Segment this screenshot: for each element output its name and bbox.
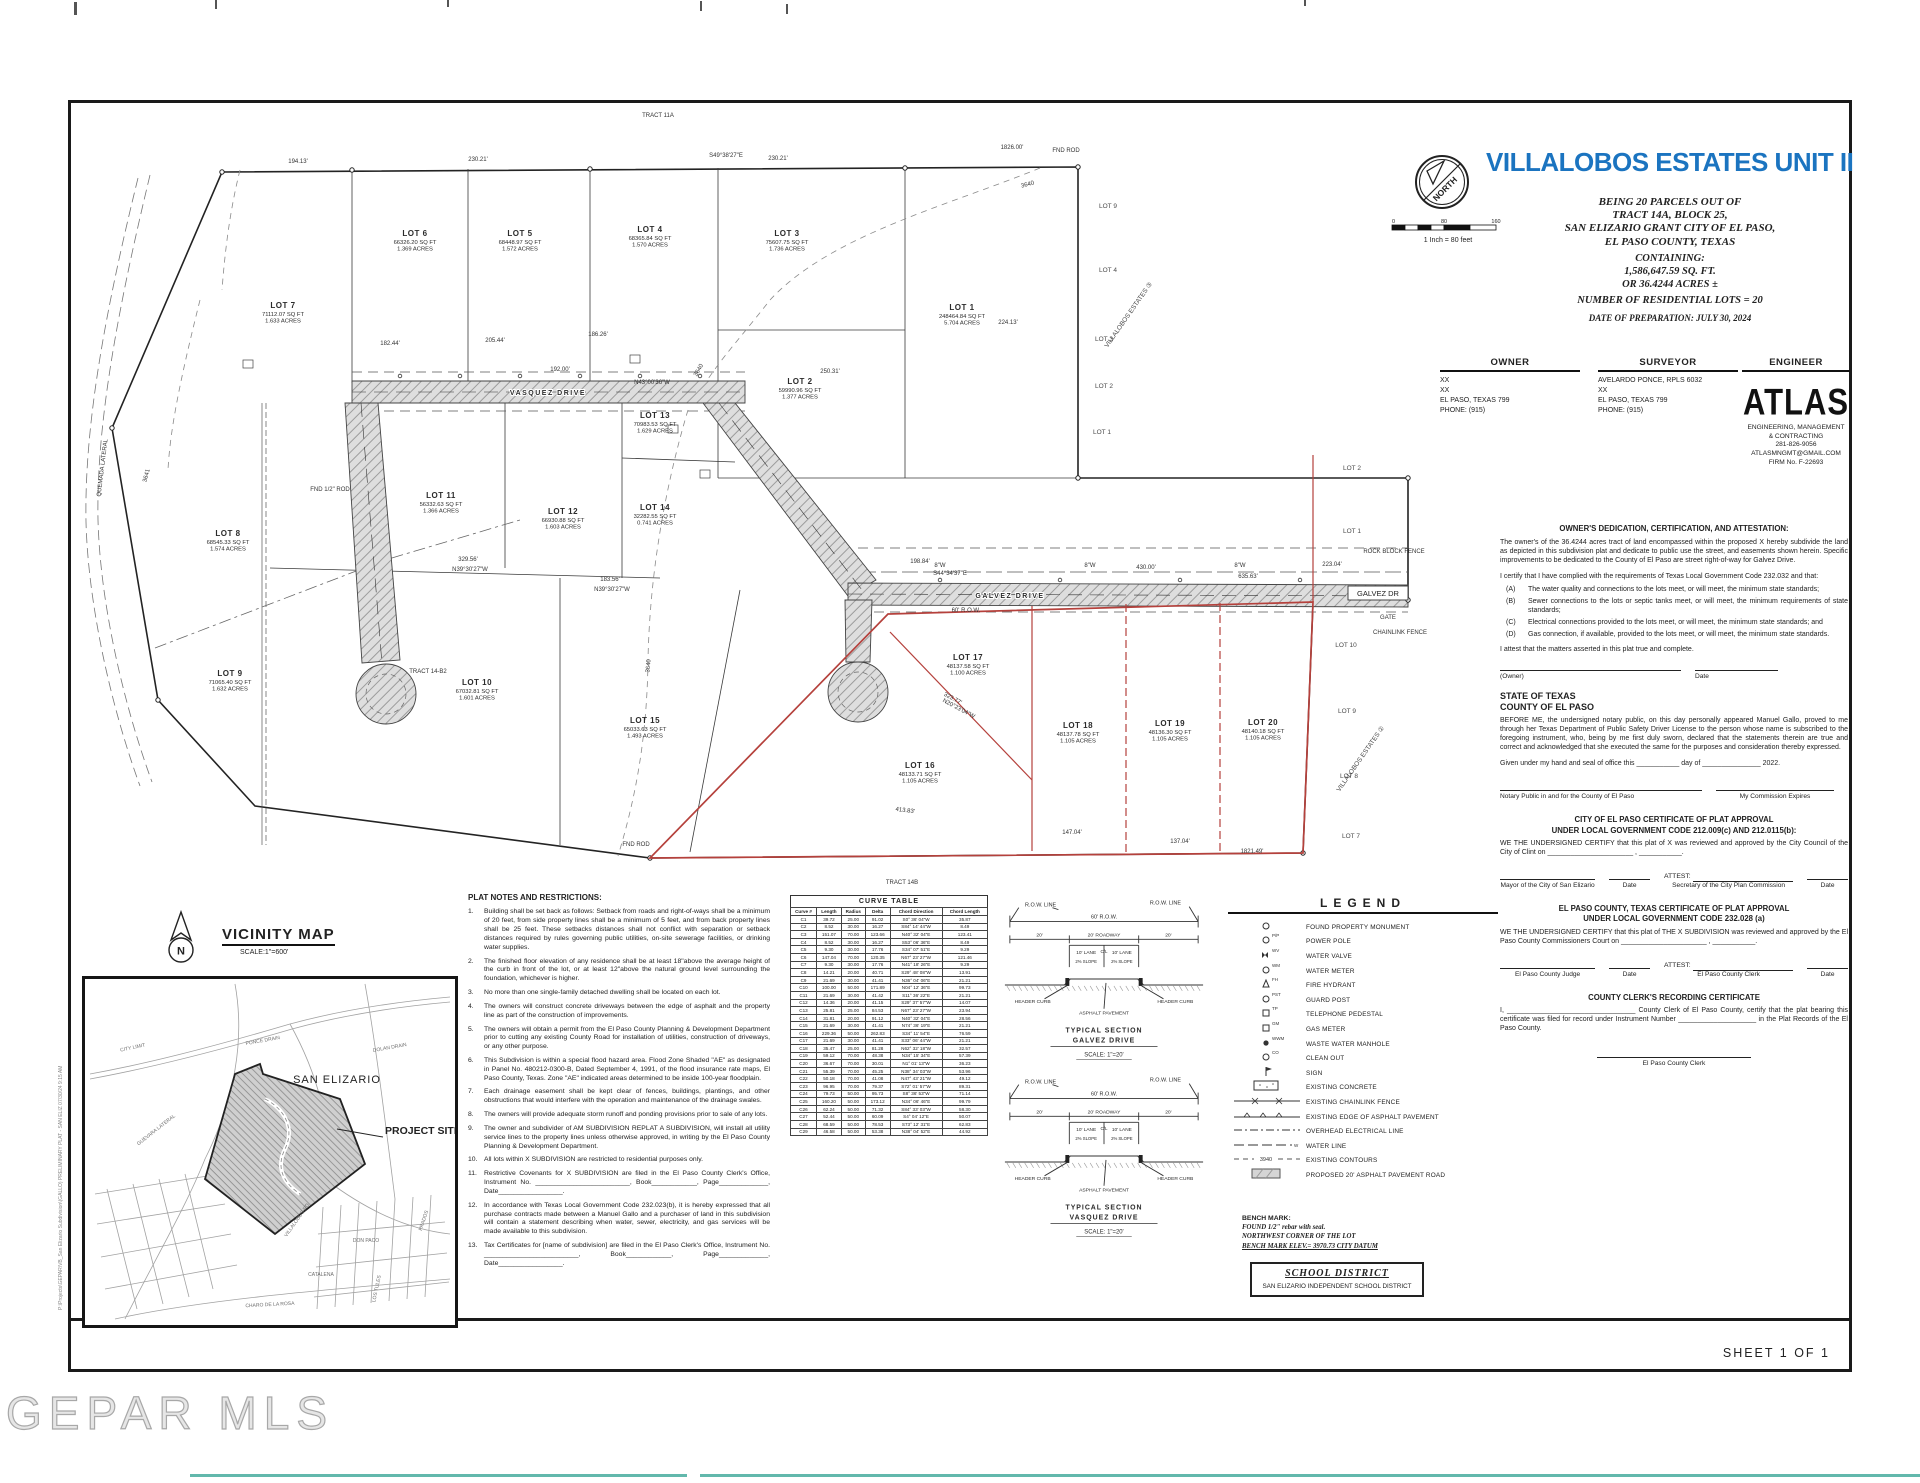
map-text: 10' LANE (1112, 1127, 1132, 1133)
dedication-item: (D)Gas connection, if available, provide… (1500, 630, 1848, 639)
north-compass: NORTH (1406, 146, 1478, 218)
lot-sqft: 66930.88 SQ FT (542, 518, 585, 524)
proposed-20-asphalt-pavement-road-icon (1228, 1166, 1306, 1185)
plat-note: 12.In accordance with Texas Local Govern… (468, 1202, 770, 1237)
map-annotation: 183.56' (600, 577, 620, 583)
lot-sqft: 65033.63 SQ FT (624, 727, 667, 733)
scan-artifact (447, 0, 449, 7)
lot-acres: 1.100 ACRES (950, 671, 986, 677)
curve-row: C1431.8120.0091.12N40° 32' 04"E28.56 (791, 1014, 988, 1022)
plat-note: 5.The owners will obtain a permit from t… (468, 1026, 770, 1052)
map-annotation: 635.63' (1238, 574, 1258, 580)
school-district-title: SCHOOL DISTRICT (1256, 1268, 1418, 1279)
map-text: R.O.W. LINE (1025, 903, 1056, 909)
galvez-dr-box-label: GALVEZ DR (1357, 589, 1400, 598)
map-text: 10' LANE (1076, 1127, 1096, 1133)
plat-note: 6.This Subdivision is within a special f… (468, 1057, 770, 1083)
containing-block: CONTAINING: 1,586,647.59 SQ. FT. OR 36.4… (1500, 252, 1840, 291)
svg-text:W: W (1294, 1143, 1299, 1148)
curve-row: C2155.3970.0045.25N38° 34' 03"W53.96 (791, 1067, 988, 1075)
map-text: HEADER CURB (1015, 1176, 1052, 1182)
curve-row: C79.3030.0017.76N41° 18' 26"E9.29 (791, 961, 988, 969)
curve-row: C2036.6770.0030.01N1° 01' 13"W36.23 (791, 1060, 988, 1068)
attestation-line: I attest that the matters asserted in th… (1500, 645, 1848, 654)
lot-name: LOT 2 (787, 377, 812, 386)
lot-name: LOT 6 (402, 229, 427, 238)
lot-name: LOT 8 (215, 529, 240, 538)
map-annotation: FND ROD (622, 842, 650, 848)
lot-name: LOT 17 (953, 653, 983, 662)
adjacent-lot-label: LOT 2 (1343, 465, 1361, 472)
map-text: ASPHALT PAVEMENT (1079, 1011, 1129, 1017)
map-annotation: 1821.49' (1241, 849, 1264, 855)
map-text: 60' R.O.W. (1091, 915, 1118, 921)
map-text: R.O.W. LINE (1025, 1080, 1056, 1086)
owner-heading: OWNER (1440, 356, 1580, 372)
map-text: ASPHALT PAVEMENT (1079, 1188, 1129, 1194)
dedication-item: (B)Sewer connections to the lots or sept… (1500, 597, 1848, 615)
map-annotation: FND ROD (1052, 148, 1080, 154)
adjacent-lot-label: VILLALOBOS ESTATES ② (1335, 724, 1387, 793)
plat-note: 2.The finished floor elevation of any re… (468, 958, 770, 984)
city-cert-title: CITY OF EL PASO CERTIFICATE OF PLAT APPR… (1500, 815, 1848, 836)
lot-name: LOT 11 (426, 491, 456, 500)
plat-note: 11.Restrictive Covenants for X SUBDIVISI… (468, 1170, 770, 1196)
lot-sqft: 66326.20 SQ FT (394, 240, 437, 246)
street-name: LOS TULES (371, 1274, 383, 1303)
scan-artifact (700, 1, 702, 11)
lot-name: LOT 15 (630, 716, 660, 725)
map-annotation: 1826.00' (1001, 145, 1024, 151)
svg-text:WM: WM (1272, 963, 1280, 968)
lot-acres: 1.601 ACRES (459, 696, 495, 702)
lot-acres: 1.369 ACRES (397, 247, 433, 253)
plat-subtitle: BEING 20 PARCELS OUT OF TRACT 14A, BLOCK… (1500, 196, 1840, 249)
vicinity-area-label: SAN ELIZARIO (293, 1074, 381, 1086)
map-text: 60' R.O.W. (1091, 1092, 1118, 1098)
adjacent-lot-label: LOT 10 (1335, 642, 1357, 649)
svg-text:WV: WV (1272, 948, 1279, 953)
lot-acres: 1.366 ACRES (423, 509, 459, 515)
lot-acres: 1.105 ACRES (1152, 737, 1188, 743)
curve-row: C2752.4450.0060.09S4° 04' 12"E50.07 (791, 1113, 988, 1121)
map-text: 20' ROADWAY (1088, 932, 1121, 938)
bench-mark: BENCH MARK: FOUND 1/2" rebar with seal. … (1242, 1214, 1378, 1251)
city-cert-signatures: Mayor of the City of San Elizario Date A… (1500, 873, 1848, 890)
school-district-name: SAN ELIZARIO INDEPENDENT SCHOOL DISTRICT (1256, 1283, 1418, 1290)
map-text: 2% SLOPE (1111, 959, 1133, 964)
mls-watermark: GEPAR MLS (6, 1386, 334, 1440)
map-annotation: 192.00' (550, 367, 570, 373)
plat-note: 10.All lots within X SUBDIVISION are res… (468, 1156, 770, 1165)
curve-col-header: Delta (865, 908, 890, 916)
lot-sqft: 59990.96 SQ FT (779, 388, 822, 394)
svg-text:3940: 3940 (1260, 1157, 1272, 1163)
map-annotation: 182.44' (380, 341, 400, 347)
street-name: DOLAN DRAIN (372, 1042, 407, 1054)
county-line: COUNTY OF EL PASO (1500, 702, 1848, 714)
plat-note: 1.Building shall be set back as follows:… (468, 908, 770, 952)
curve-row: C1521.6930.0041.41N74° 36' 19"E21.21 (791, 1022, 988, 1030)
lot-sqft: 71065.40 SQ FT (209, 680, 252, 686)
lot-acres: 1.105 ACRES (902, 779, 938, 785)
sheet-number: SHEET 1 OF 1 (1610, 1346, 1830, 1360)
adjacent-lot-label: LOT 1 (1093, 429, 1111, 436)
engineer-contact: ENGINEERING, MANAGEMENT & CONTRACTING 28… (1742, 424, 1850, 468)
map-annotation: TRACT 14-B2 (409, 669, 447, 675)
plat-notes-list: 1.Building shall be set back as follows:… (468, 908, 770, 1268)
svg-text:GM: GM (1272, 1021, 1280, 1026)
lot-name: LOT 16 (905, 761, 935, 770)
lot-name: LOT 9 (217, 669, 242, 678)
street-name: CITY LIMIT (120, 1042, 146, 1053)
map-text: 20' (1165, 932, 1171, 938)
svg-text:WWM: WWM (1272, 1036, 1284, 1041)
vicinity-map-scale: SCALE:1"=600' (240, 949, 288, 956)
curve-row: C1325.8125.0084.53N67° 23' 27"W23.94 (791, 1007, 988, 1015)
road-name: GALVEZ DRIVE (975, 593, 1044, 600)
plat-note: 8.The owners will provide adequate storm… (468, 1111, 770, 1120)
lot-acres: 1.493 ACRES (627, 734, 663, 740)
lot-acres: 1.736 ACRES (769, 247, 805, 253)
lot-name: LOT 10 (462, 678, 492, 687)
lot-sqft: 67032.81 SQ FT (456, 689, 499, 695)
plat-map: GALVEZ DR 194.13'230.21'230.21'1826.00'T… (70, 103, 1512, 898)
map-annotation: 60' R.O.W. (952, 608, 981, 614)
svg-text:80: 80 (1441, 219, 1447, 225)
curve-row: C59.3030.0017.76S34° 07' 51"E9.29 (791, 946, 988, 954)
clerk-cert-body: I, _________________________________ Cou… (1500, 1006, 1848, 1033)
lot-sqft: 68545.33 SQ FT (207, 540, 250, 546)
map-annotation: QUEMADA LATERAL (97, 438, 110, 497)
svg-text:N: N (177, 946, 185, 958)
lot-name: LOT 12 (548, 507, 578, 516)
map-text: TYPICAL SECTION (1065, 1205, 1142, 1212)
map-annotations: 194.13'230.21'230.21'1826.00'TRACT 11AS4… (97, 113, 1428, 886)
county-cert-title: EL PASO COUNTY, TEXAS CERTIFICATE OF PLA… (1500, 904, 1848, 925)
curve-col-header: Length (817, 908, 842, 916)
adjacent-lot-label: LOT 8 (1340, 773, 1358, 780)
lot-sqft: 75607.75 SQ FT (766, 240, 809, 246)
map-text: R.O.W. LINE (1150, 901, 1181, 907)
adjacent-lot-labels: LOT 9LOT 4LOT 3LOT 2LOT 1VILLALOBOS ESTA… (1093, 203, 1386, 840)
map-annotation: CHAINLINK FENCE (1373, 630, 1427, 636)
curve-col-header: Curve # (791, 908, 817, 916)
legend: LEGEND FOUND PROPERTY MONUMENTP/PPOWER P… (1228, 896, 1498, 1183)
lot-name: LOT 3 (774, 229, 799, 238)
plat-note: 3.No more than one single-family detache… (468, 989, 770, 998)
curve-row: C2662.2450.0071.32S84° 33' 03"W58.30 (791, 1105, 988, 1113)
dedication-code-intro: I certify that I have complied with the … (1500, 572, 1848, 581)
engineer-block: ENGINEER ATLAS ENGINEERING, MANAGEMENT &… (1742, 356, 1850, 468)
street-name: GUEVARA LATERAL (136, 1113, 177, 1147)
curve-row: C1959.1270.0048.38N34° 15' 34"E57.39 (791, 1052, 988, 1060)
scale-bar: 0 80 160 1 Inch = 80 feet (1386, 216, 1510, 252)
notary-signature-row: Notary Public in and for the County of E… (1500, 790, 1848, 801)
svg-text:0: 0 (1392, 219, 1395, 225)
plat-note: 13.Tax Certificates for [name of subdivi… (468, 1242, 770, 1268)
map-text: 20' (1036, 1109, 1042, 1115)
adjacent-lot-label: VILLALOBOS ESTATES ③ (1103, 280, 1155, 349)
lot-sqft: 68448.97 SQ FT (499, 240, 542, 246)
map-text: VASQUEZ DRIVE (1070, 1214, 1139, 1221)
lot-sqft: 48137.58 SQ FT (947, 664, 990, 670)
lot-name: LOT 4 (637, 225, 662, 234)
curve-row: C16229.3650.00262.83S34° 11' 54"E76.59 (791, 1029, 988, 1037)
map-annotation: GATE (1380, 615, 1396, 621)
scan-artifact (1304, 0, 1306, 6)
map-text: HEADER CURB (1157, 1176, 1194, 1182)
file-path-text: P:\Projects\GEPAR\VB_San Elizario Subdiv… (58, 1066, 64, 1310)
map-annotation: 250.31' (820, 369, 840, 375)
curve-row: C10100.0050.00171.89N04° 12' 36"E99.73 (791, 984, 988, 992)
curve-row: C2868.5950.0078.53S73° 12' 31"E62.83 (791, 1121, 988, 1129)
curve-row: C48.5230.0016.27S53° 06' 36"E8.49 (791, 938, 988, 946)
map-text: SCALE: 1"=20' (1084, 1229, 1123, 1235)
curve-row: C6147.0470.00120.35N67° 23' 27"W121.46 (791, 953, 988, 961)
map-text: 20' (1165, 1109, 1171, 1115)
vicinity-site-label: PROJECT SITE (385, 1125, 458, 1137)
curve-row: C2250.1870.0041.08N47° 43' 21"W49.12 (791, 1075, 988, 1083)
dedication-paragraph: The owner's of the 36.4244 acres tract o… (1500, 538, 1848, 565)
plat-note: 4.The owners will construct concrete dri… (468, 1003, 770, 1021)
adjacent-lot-label: LOT 9 (1338, 708, 1356, 715)
lot-acres: 1.632 ACRES (212, 687, 248, 693)
curve-row: C814.2120.0040.71S29° 48' 08"W13.91 (791, 969, 988, 977)
map-text: SCALE: 1"=20' (1084, 1052, 1123, 1058)
vicinity-compass: N (150, 908, 212, 972)
dedication-item: (A)The water quality and connections to … (1500, 585, 1848, 594)
map-annotation: 223.04' (1322, 562, 1342, 568)
owner-block: OWNER XX XX EL PASO, TEXAS 799 PHONE: (9… (1440, 356, 1580, 415)
county-cert-body: WE THE UNDERSIGNED CERTIFY that this pla… (1500, 928, 1848, 946)
curve-col-header: Radius (841, 908, 865, 916)
scan-artifact (74, 2, 77, 15)
map-text: 20' ROADWAY (1088, 1109, 1121, 1115)
lot-acres: 0.741 ACRES (637, 521, 673, 527)
map-annotation: 8"W (934, 563, 945, 569)
map-text: C/L (1101, 1126, 1108, 1131)
plat-notes: PLAT NOTES AND RESTRICTIONS: 1.Building … (468, 893, 770, 1274)
typical-section-vasquez: R.O.W. LINER.O.W. LINE60' R.O.W.20'20' R… (995, 1070, 1213, 1247)
map-annotation: 8"W (1084, 563, 1095, 569)
lot-sqft: 48133.71 SQ FT (899, 772, 942, 778)
svg-text:FH: FH (1272, 977, 1278, 982)
legend-title: LEGEND (1228, 896, 1498, 914)
map-annotation: S44°34'37"E (933, 571, 967, 577)
lot-acres: 1.105 ACRES (1060, 739, 1096, 745)
lot-sqft: 48137.78 SQ FT (1057, 732, 1100, 738)
subdivision-boundary (112, 167, 1408, 858)
curve-row: C3151.0770.00123.66N40° 32' 04"E123.41 (791, 931, 988, 939)
lot-sqft: 71112.07 SQ FT (262, 312, 304, 318)
scan-line (700, 1474, 1920, 1477)
curve-row: C921.6930.0041.41N36° 04' 06"E21.21 (791, 976, 988, 984)
adjacent-lot-label: LOT 9 (1099, 203, 1117, 210)
svg-text:1 Inch = 80 feet: 1 Inch = 80 feet (1424, 237, 1473, 244)
map-annotation: S49°38'27"E (709, 153, 743, 159)
map-annotation: 230.21' (768, 156, 788, 162)
preparation-date: DATE OF PREPARATION: JULY 30, 2024 (1488, 313, 1852, 323)
curve-table-title: CURVE TABLE (790, 895, 988, 907)
map-annotation: 3640 (645, 658, 652, 672)
map-annotation: N43°00'36"W (634, 380, 670, 386)
map-annotation: FND 1/2" ROD (310, 487, 350, 493)
map-text: 2% SLOPE (1111, 1136, 1133, 1141)
street-name: CHARO DE LA ROSA (245, 1301, 295, 1310)
map-annotation: 230.21' (468, 157, 488, 163)
map-annotation: 186.26' (588, 332, 608, 338)
lot-acres: 1.603 ACRES (545, 525, 581, 531)
lot-sqft: 248464.84 SQ FT (939, 314, 986, 320)
map-annotation: 3640 (693, 363, 705, 378)
city-cert-body: WE THE UNDERSIGNED CERTIFY that this pla… (1500, 839, 1848, 857)
map-annotation: 205.44' (485, 338, 505, 344)
curve-row: C2946.5850.0053.38N38° 04' 52"E44.92 (791, 1128, 988, 1136)
curve-col-header: Chord Length (942, 908, 987, 916)
map-text: HEADER CURB (1157, 999, 1194, 1005)
vicinity-map-title: VICINITY MAP (222, 926, 335, 946)
lot-name: LOT 1 (949, 303, 974, 312)
adjacent-lot-label: LOT 4 (1099, 267, 1117, 274)
scan-line (190, 1474, 687, 1477)
lot-acres: 1.633 ACRES (265, 319, 301, 325)
map-annotation: 194.13' (288, 159, 308, 165)
given-line: Given under my hand and seal of office t… (1500, 759, 1848, 768)
surveyor-heading: SURVEYOR (1598, 356, 1738, 372)
curve-row: C2396.9570.0079.37S72° 01' 57"W89.31 (791, 1083, 988, 1091)
svg-text:PST: PST (1272, 992, 1281, 997)
lot-acres: 1.377 ACRES (782, 395, 818, 401)
map-annotation: N39°30'27"W (452, 567, 488, 573)
map-text: 10' LANE (1112, 950, 1132, 956)
plat-note: 7.Each drainage easement shall be kept c… (468, 1088, 770, 1106)
street-name: PRADOS (418, 1209, 430, 1232)
curve-row: C1835.4725.0081.28N62° 32' 18"W32.57 (791, 1045, 988, 1053)
lot-name: LOT 13 (640, 411, 670, 420)
curve-row: C1121.6930.0041.42S11° 36' 22"E21.21 (791, 991, 988, 999)
adjacent-lot-label: LOT 2 (1095, 383, 1113, 390)
legend-item: PROPOSED 20' ASPHALT PAVEMENT ROAD (1228, 1168, 1498, 1183)
map-text: 10' LANE (1076, 950, 1096, 956)
curve-row: C28.5230.0016.27S84° 14' 44"W8.49 (791, 923, 988, 931)
lot-sqft: 70983.53 SQ FT (634, 422, 677, 428)
road-name: VASQUEZ DRIVE (510, 390, 586, 397)
map-annotation: 3641 (142, 468, 151, 483)
street-name: DON PACO (353, 1238, 379, 1244)
map-text: 20' (1036, 932, 1042, 938)
map-text: C/L (1101, 949, 1108, 954)
map-annotation: N39°30'27"W (594, 587, 630, 593)
curve-table: CURVE TABLE Curve #LengthRadiusDeltaChor… (790, 895, 988, 1136)
legend-items: FOUND PROPERTY MONUMENTP/PPOWER POLEWVWA… (1228, 920, 1498, 1183)
lot-acres: 1.570 ACRES (632, 243, 668, 249)
school-district-box: SCHOOL DISTRICT SAN ELIZARIO INDEPENDENT… (1250, 1262, 1424, 1297)
lot-sqft: 56332.63 SQ FT (420, 502, 463, 508)
lot-sqft: 68365.84 SQ FT (629, 236, 672, 242)
map-text: GALVEZ DRIVE (1073, 1037, 1136, 1044)
map-text: 2% SLOPE (1075, 1136, 1097, 1141)
vicinity-map: SAN ELIZARIO PROJECT SITE CITY LIMITPONC… (82, 976, 458, 1328)
curve-row: C2479.7350.0095.73S8° 36' 53"W71.14 (791, 1090, 988, 1098)
scanned-plat-page: { "header": { "title": "VILLALOBOS ESTAT… (0, 0, 1920, 1483)
map-text: HEADER CURB (1015, 999, 1052, 1005)
engineer-heading: ENGINEER (1742, 356, 1850, 372)
map-annotation: 430.00' (1136, 565, 1156, 571)
plat-title: VILLALOBOS ESTATES UNIT II (1486, 147, 1848, 178)
lot-name: LOT 20 (1248, 718, 1278, 727)
curve-row: C139.7225.0091.02S0° 36' 04"W35.87 (791, 916, 988, 924)
curve-col-header: Chord Direction (890, 908, 942, 916)
map-annotation: 8"W (1234, 563, 1245, 569)
map-annotation: 3640 (1021, 180, 1036, 189)
map-text: TYPICAL SECTION (1065, 1028, 1142, 1035)
lot-sqft: 48140.18 SQ FT (1242, 729, 1285, 735)
owner-signature-row: (Owner) Date (1500, 670, 1848, 681)
map-annotation: 329.56' (458, 557, 478, 563)
clerk-signature-row: El Paso County Clerk (1500, 1057, 1848, 1068)
lot-sqft: 32282.55 SQ FT (634, 514, 677, 520)
map-annotation: TRACT 11A (642, 113, 674, 119)
map-text: R.O.W. LINE (1150, 1078, 1181, 1084)
legal-column: OWNER'S DEDICATION, CERTIFICATION, AND A… (1500, 524, 1848, 1078)
svg-text:P/P: P/P (1272, 933, 1279, 938)
lot-acres: 1.629 ACRES (637, 429, 673, 435)
lot-acres: 1.105 ACRES (1245, 736, 1281, 742)
notary-paragraph: BEFORE ME, the undersigned notary public… (1500, 716, 1848, 752)
map-annotation: ROCK BLOCK FENCE (1363, 549, 1424, 555)
map-text: 2% SLOPE (1075, 959, 1097, 964)
state-line: STATE OF TEXAS (1500, 691, 1848, 703)
map-annotation: 198.84' (910, 559, 930, 565)
plat-notes-title: PLAT NOTES AND RESTRICTIONS: (468, 893, 770, 903)
lot-name: LOT 19 (1155, 719, 1185, 728)
lot-name: LOT 5 (507, 229, 532, 238)
map-annotation: TRACT 14B (886, 880, 918, 886)
dedication-item: (C)Electrical connections provided to th… (1500, 618, 1848, 627)
surveyor-block: SURVEYOR AVELARDO PONCE, RPLS 6032 XX EL… (1598, 356, 1738, 415)
lot-acres: 1.574 ACRES (210, 547, 246, 553)
lot-name: LOT 7 (270, 301, 295, 310)
lot-name: LOT 18 (1063, 721, 1093, 730)
map-annotation: 224.13' (998, 320, 1018, 326)
lot-acres: 5.704 ACRES (944, 321, 980, 327)
scan-artifact (215, 0, 217, 9)
dedication-items: (A)The water quality and connections to … (1500, 585, 1848, 639)
plat-note: 9.The owner and subdivider of AM SUBDIVI… (468, 1125, 770, 1151)
street-name: CATALENA (308, 1272, 334, 1278)
adjacent-lot-label: LOT 7 (1342, 833, 1360, 840)
curve-row: C1214.3620.0041.15S29° 37' 57"W14.07 (791, 999, 988, 1007)
lot-acres: 1.572 ACRES (502, 247, 538, 253)
curve-row: C1721.6930.0041.41S33° 06' 44"W21.21 (791, 1037, 988, 1045)
street-name: PONCE DRAIN (245, 1035, 281, 1047)
dedication-title: OWNER'S DEDICATION, CERTIFICATION, AND A… (1500, 524, 1848, 534)
svg-text:TP: TP (1272, 1006, 1278, 1011)
svg-text:CO: CO (1272, 1050, 1279, 1055)
residential-lots-line: NUMBER OF RESIDENTIAL LOTS = 20 (1488, 295, 1852, 306)
adjacent-lot-label: LOT 1 (1343, 528, 1361, 535)
curve-row: C25160.2050.00173.12N34° 06' 46"E99.79 (791, 1098, 988, 1106)
county-cert-signatures: El Paso County Judge Date ATTEST: El Pas… (1500, 962, 1848, 979)
atlas-logo: ATLAS (1742, 376, 1850, 428)
lot-name: LOT 14 (640, 503, 670, 512)
typical-section-galvez: R.O.W. LINER.O.W. LINE60' R.O.W.20'20' R… (995, 893, 1213, 1070)
lot-sqft: 48136.30 SQ FT (1149, 730, 1192, 736)
map-annotation: 413.83' (895, 807, 915, 815)
clerk-cert-title: COUNTY CLERK'S RECORDING CERTIFICATE (1500, 993, 1848, 1004)
scan-artifact (786, 4, 788, 14)
